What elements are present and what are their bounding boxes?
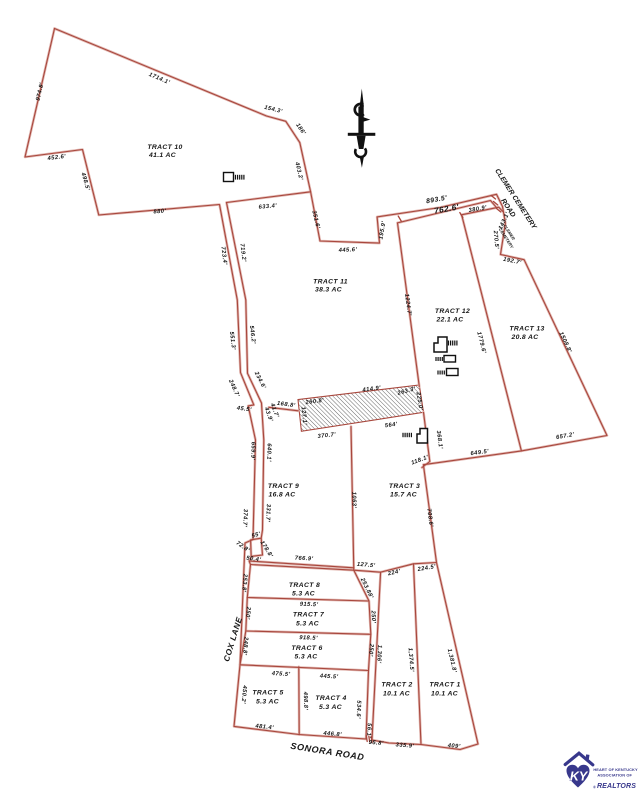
svg-text:TRACT 3: TRACT 3 (389, 483, 420, 490)
svg-text:918.5': 918.5' (299, 635, 318, 642)
svg-text:880': 880' (153, 208, 166, 215)
svg-text:®: ® (593, 785, 596, 790)
svg-text:20.8 AC: 20.8 AC (510, 334, 538, 341)
svg-text:640.1': 640.1' (265, 443, 271, 462)
svg-text:409': 409' (446, 743, 460, 750)
svg-text:475.5': 475.5' (271, 671, 291, 678)
svg-text:HEART OF KENTUCKY: HEART OF KENTUCKY (593, 767, 638, 772)
svg-text:ASSOCIATION OF: ASSOCIATION OF (597, 773, 632, 778)
svg-text:TRACT 9: TRACT 9 (268, 483, 299, 490)
svg-text:41.1 AC: 41.1 AC (148, 152, 176, 159)
svg-text:TRACT 6: TRACT 6 (291, 645, 322, 652)
svg-text:1,306': 1,306' (375, 645, 382, 664)
svg-text:22.1 AC: 22.1 AC (435, 317, 463, 324)
svg-text:766.9': 766.9' (295, 556, 314, 563)
svg-text:659.9': 659.9' (249, 442, 255, 461)
svg-text:534.6': 534.6' (355, 700, 362, 719)
svg-text:5.3 AC: 5.3 AC (319, 704, 342, 711)
svg-text:TRACT 8: TRACT 8 (289, 582, 320, 589)
svg-text:TRACT 5: TRACT 5 (252, 690, 283, 697)
svg-text:TRACT 1: TRACT 1 (429, 682, 460, 689)
svg-text:TRACT 11: TRACT 11 (313, 279, 348, 286)
svg-text:15.7 AC: 15.7 AC (390, 492, 417, 499)
svg-text:915.5': 915.5' (300, 602, 319, 609)
svg-text:250': 250' (369, 609, 376, 623)
svg-text:10.1 AC: 10.1 AC (383, 691, 410, 698)
svg-text:10.1 AC: 10.1 AC (431, 691, 458, 698)
svg-text:374.7': 374.7' (241, 509, 248, 528)
svg-text:TRACT 12: TRACT 12 (435, 308, 470, 315)
svg-text:445.5': 445.5' (319, 673, 339, 680)
svg-text:38.3 AC: 38.3 AC (315, 287, 342, 294)
svg-text:TRACT 7: TRACT 7 (293, 612, 325, 619)
svg-text:445.6': 445.6' (338, 247, 358, 254)
svg-text:TRACT 10: TRACT 10 (147, 144, 182, 151)
svg-text:KY: KY (570, 770, 589, 784)
svg-text:498.8': 498.8' (302, 691, 308, 711)
svg-text:TRACT 2: TRACT 2 (381, 682, 412, 689)
svg-text:56.1': 56.1' (365, 723, 372, 738)
svg-text:5.3 AC: 5.3 AC (296, 621, 319, 628)
svg-text:TRACT 13: TRACT 13 (509, 326, 544, 333)
svg-text:5.3 AC: 5.3 AC (292, 591, 315, 598)
svg-text:5.3 AC: 5.3 AC (294, 654, 317, 661)
svg-text:250': 250' (244, 605, 251, 619)
svg-text:REALTORS: REALTORS (597, 783, 636, 790)
svg-text:TRACT 4: TRACT 4 (315, 695, 346, 702)
svg-text:5.3 AC: 5.3 AC (256, 699, 279, 706)
svg-text:1063': 1063' (350, 492, 356, 509)
svg-text:250': 250' (367, 642, 374, 656)
svg-text:16.8 AC: 16.8 AC (268, 492, 295, 499)
svg-text:331.7': 331.7' (264, 504, 271, 523)
